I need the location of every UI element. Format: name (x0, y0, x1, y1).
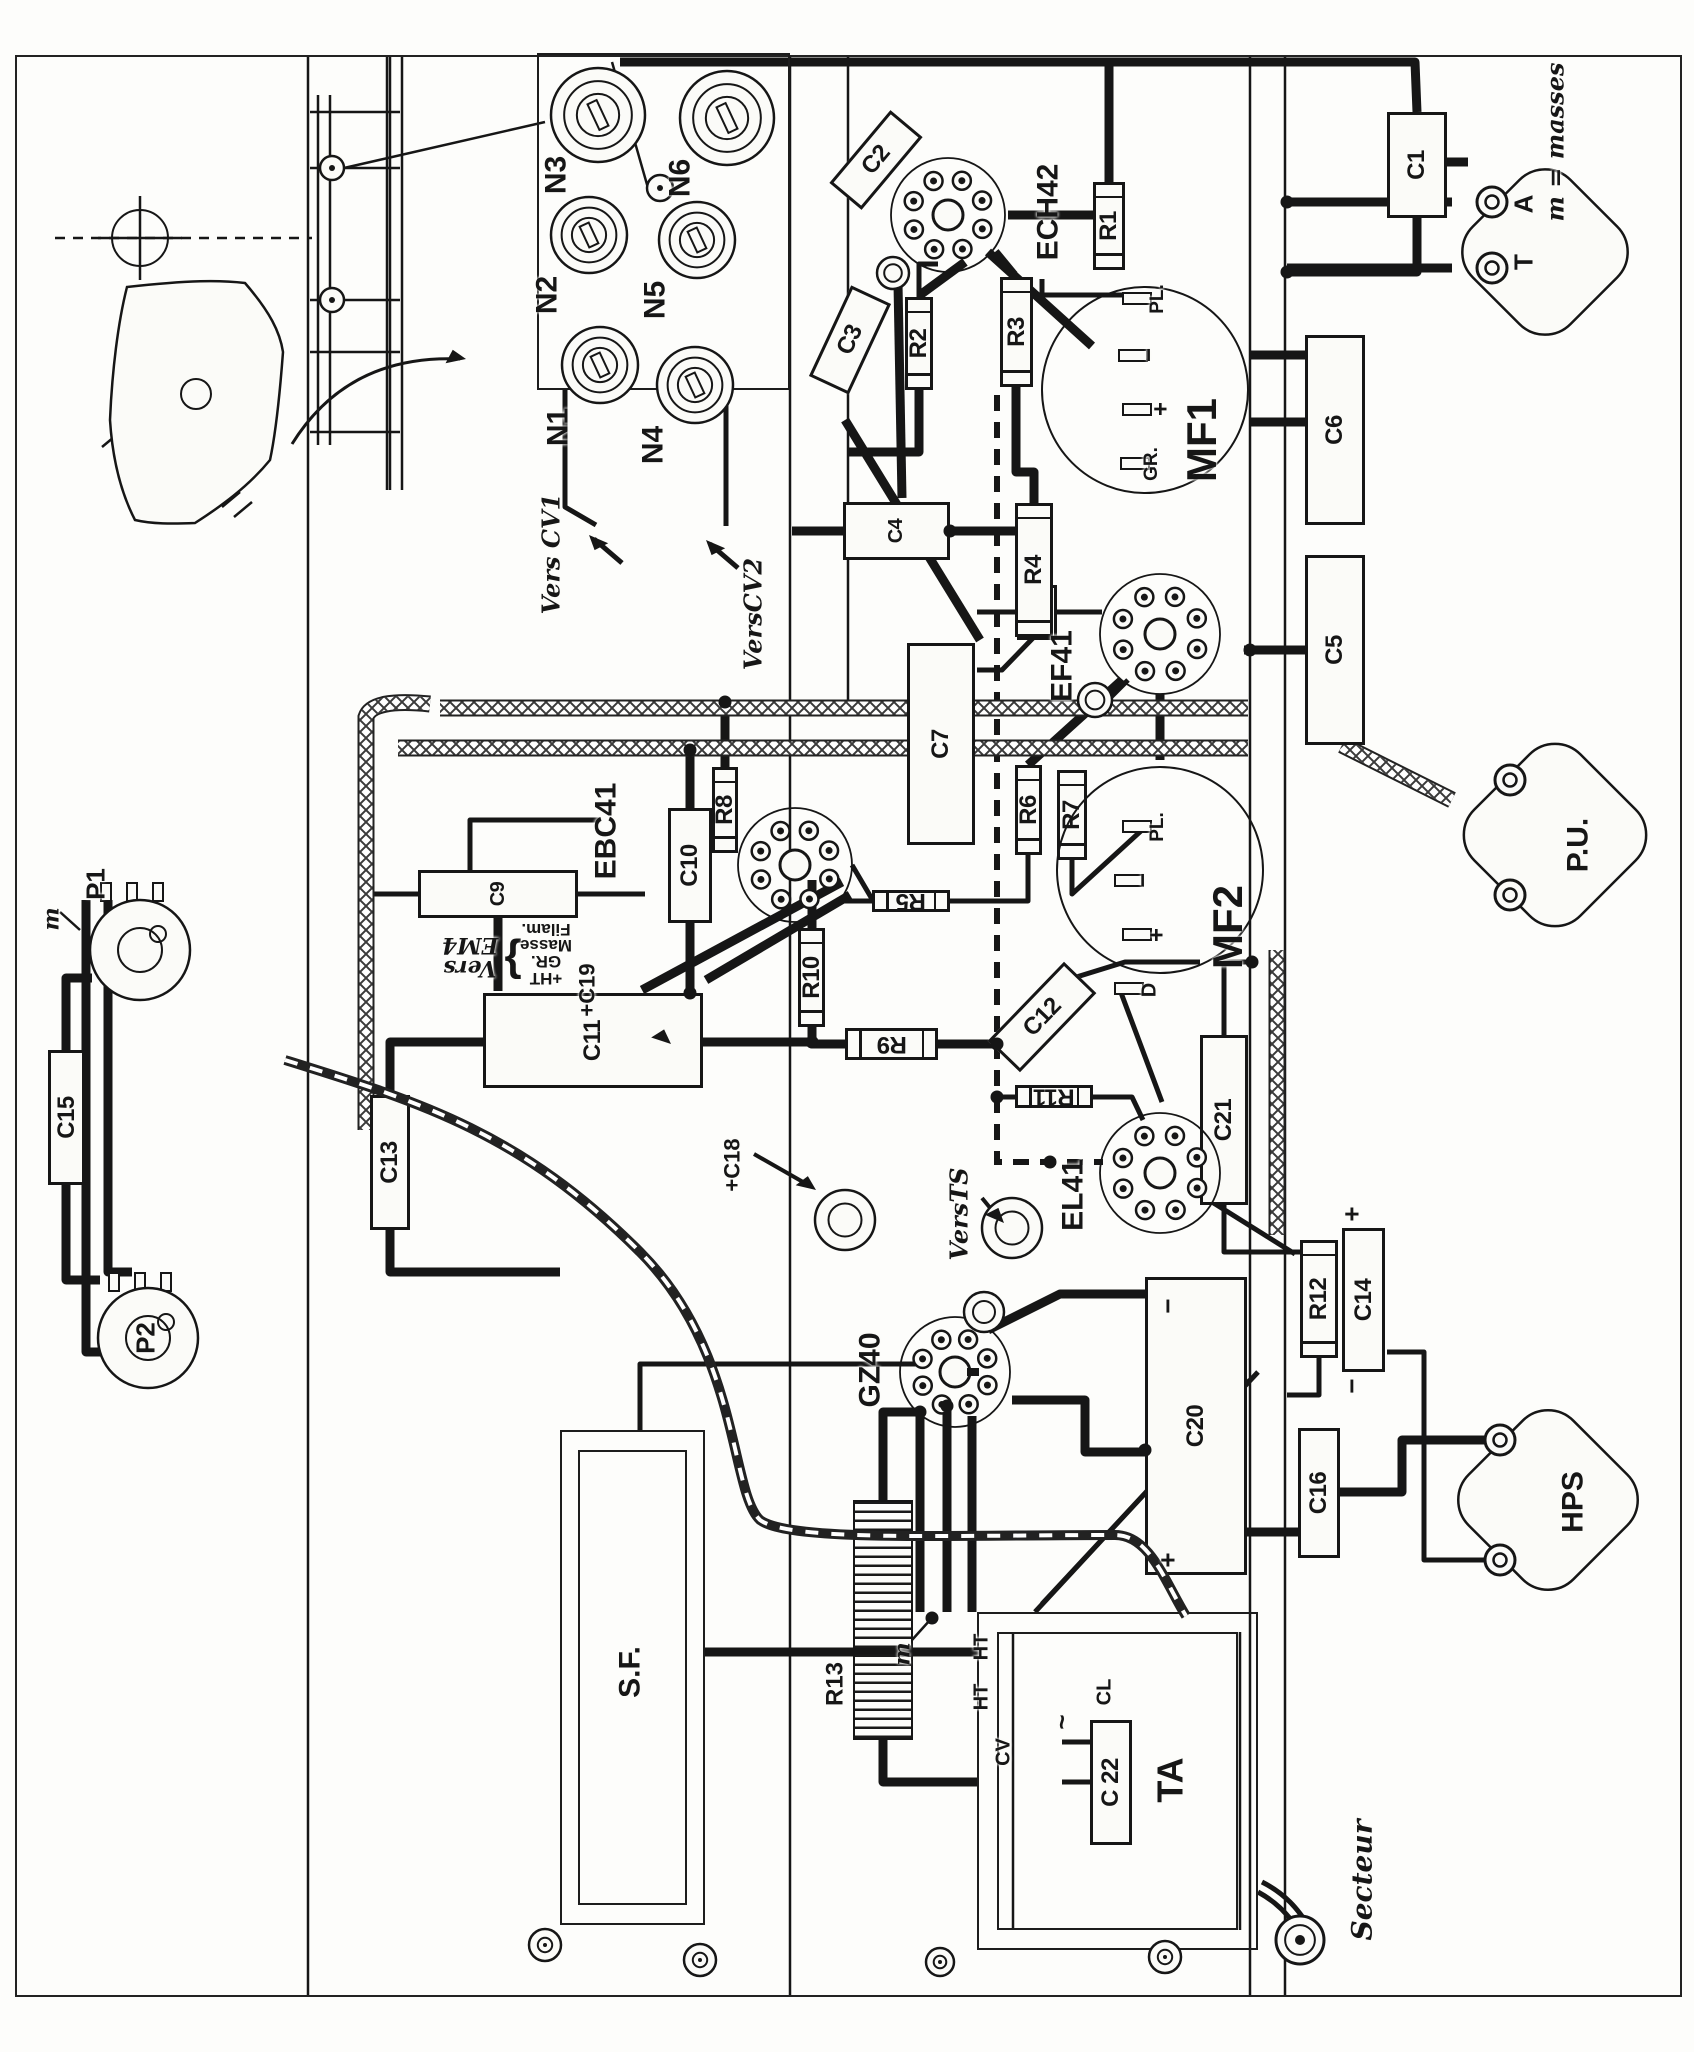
label-m: m (41, 907, 64, 930)
label-+ht: +HT (530, 969, 563, 987)
label-n5: N5 (639, 281, 670, 319)
label-+c19: +C19 (577, 963, 600, 1016)
label-n6: N6 (664, 159, 695, 197)
label-ebc41: EBC41 (590, 783, 621, 880)
label-t: T (1510, 254, 1537, 270)
label-verscv2: VersCV2 (742, 558, 767, 670)
label-r13: R13 (824, 1662, 849, 1706)
label-: − (1154, 1298, 1181, 1313)
label-sf: S.F. (614, 1646, 645, 1698)
label-el41: EL41 (1057, 1159, 1088, 1231)
label-ech42: ECH42 (1032, 164, 1063, 261)
label-ta: TA (1151, 1757, 1188, 1802)
label-: − (1138, 348, 1163, 362)
label-hps: HPS (1557, 1471, 1588, 1533)
label-: ~ (1048, 1714, 1075, 1729)
label-ef41: EF41 (1046, 630, 1077, 702)
label-mmasses: m = masses (1544, 63, 1569, 222)
label-+: + (1146, 928, 1171, 942)
label-: − (1132, 873, 1157, 887)
label-+: + (1338, 1206, 1365, 1221)
label-m: m (892, 1642, 915, 1665)
label-+: + (1154, 1552, 1181, 1567)
label-cv: CV (994, 1738, 1015, 1766)
label-gr: GR. (1142, 447, 1162, 481)
label-ht: HT (972, 1684, 993, 1711)
label-+c18: +C18 (722, 1138, 745, 1191)
label-cl: CL (1095, 1679, 1116, 1706)
label-: − (1338, 1378, 1365, 1393)
label-versem4: Vers EM4 (442, 933, 498, 979)
label-secteur: Secteur (1347, 1820, 1376, 1941)
label-a: A (1510, 195, 1537, 214)
label-n1: N1 (542, 408, 573, 446)
label-n4: N4 (637, 426, 668, 464)
label-n2: N2 (531, 276, 562, 314)
label-d: D (1140, 983, 1161, 997)
label-verscv1: Vers CV1 (540, 494, 565, 615)
label-: { (504, 933, 521, 979)
label-pl: PL. (1148, 284, 1168, 314)
label-versts: VersTS (948, 1167, 973, 1260)
label-ht: HT (972, 1634, 993, 1661)
label-n3: N3 (540, 156, 571, 194)
label-mf1: MF1 (1180, 398, 1224, 482)
label-pu: P.U. (1562, 818, 1593, 872)
label-gz40: GZ40 (854, 1332, 885, 1407)
label-mf2: MF2 (1206, 885, 1250, 969)
label-p2: P2 (132, 1322, 159, 1354)
schematic-scan-page: C1C2C3C4C5C6C7C8C9C10C11C12C13C14C15C16C… (0, 0, 1694, 2052)
label-filam: Filam. (521, 920, 570, 938)
landscape-diagram: C1C2C3C4C5C6C7C8C9C10C11C12C13C14C15C16C… (0, 0, 1694, 2052)
label-+: + (1150, 402, 1175, 416)
labels-layer: N1N2N3N4N5N6ECH42EF41EBC41EL41GZ40MF1MF2… (0, 0, 1694, 2052)
label-p1: P1 (82, 868, 109, 900)
label-pl: PL. (1148, 812, 1168, 842)
